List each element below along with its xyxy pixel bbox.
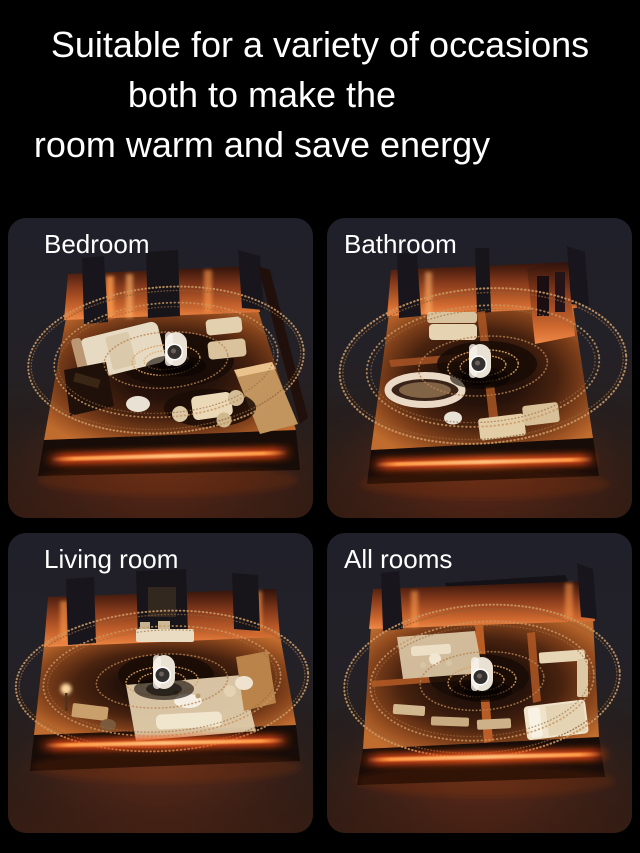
page-root: { "title": { "lines": [ "Suitable for a … [0, 0, 640, 853]
panel-label: Bedroom [44, 228, 150, 260]
living-room-scene-illustration [8, 533, 313, 833]
title-line-3: room warm and save energy [0, 120, 524, 170]
title-line-1: Suitable for a variety of occasions [0, 20, 640, 70]
bedroom-scene-illustration [8, 218, 313, 518]
bathroom-scene-illustration [327, 218, 632, 518]
all-rooms-scene-illustration [327, 533, 632, 833]
panel-label: All rooms [344, 543, 452, 575]
panel-label: Bathroom [344, 228, 457, 260]
panel-living-room: Living room [8, 533, 313, 833]
title-line-2: both to make the [0, 70, 524, 120]
title-subline-wrap: both to make the room warm and save ener… [0, 70, 524, 170]
panel-bathroom: Bathroom [327, 218, 632, 518]
page-title: Suitable for a variety of occasions both… [0, 20, 640, 170]
panel-label: Living room [44, 543, 178, 575]
panel-bedroom: Bedroom [8, 218, 313, 518]
room-grid: Bedroom [8, 218, 632, 833]
panel-all-rooms: All rooms [327, 533, 632, 833]
